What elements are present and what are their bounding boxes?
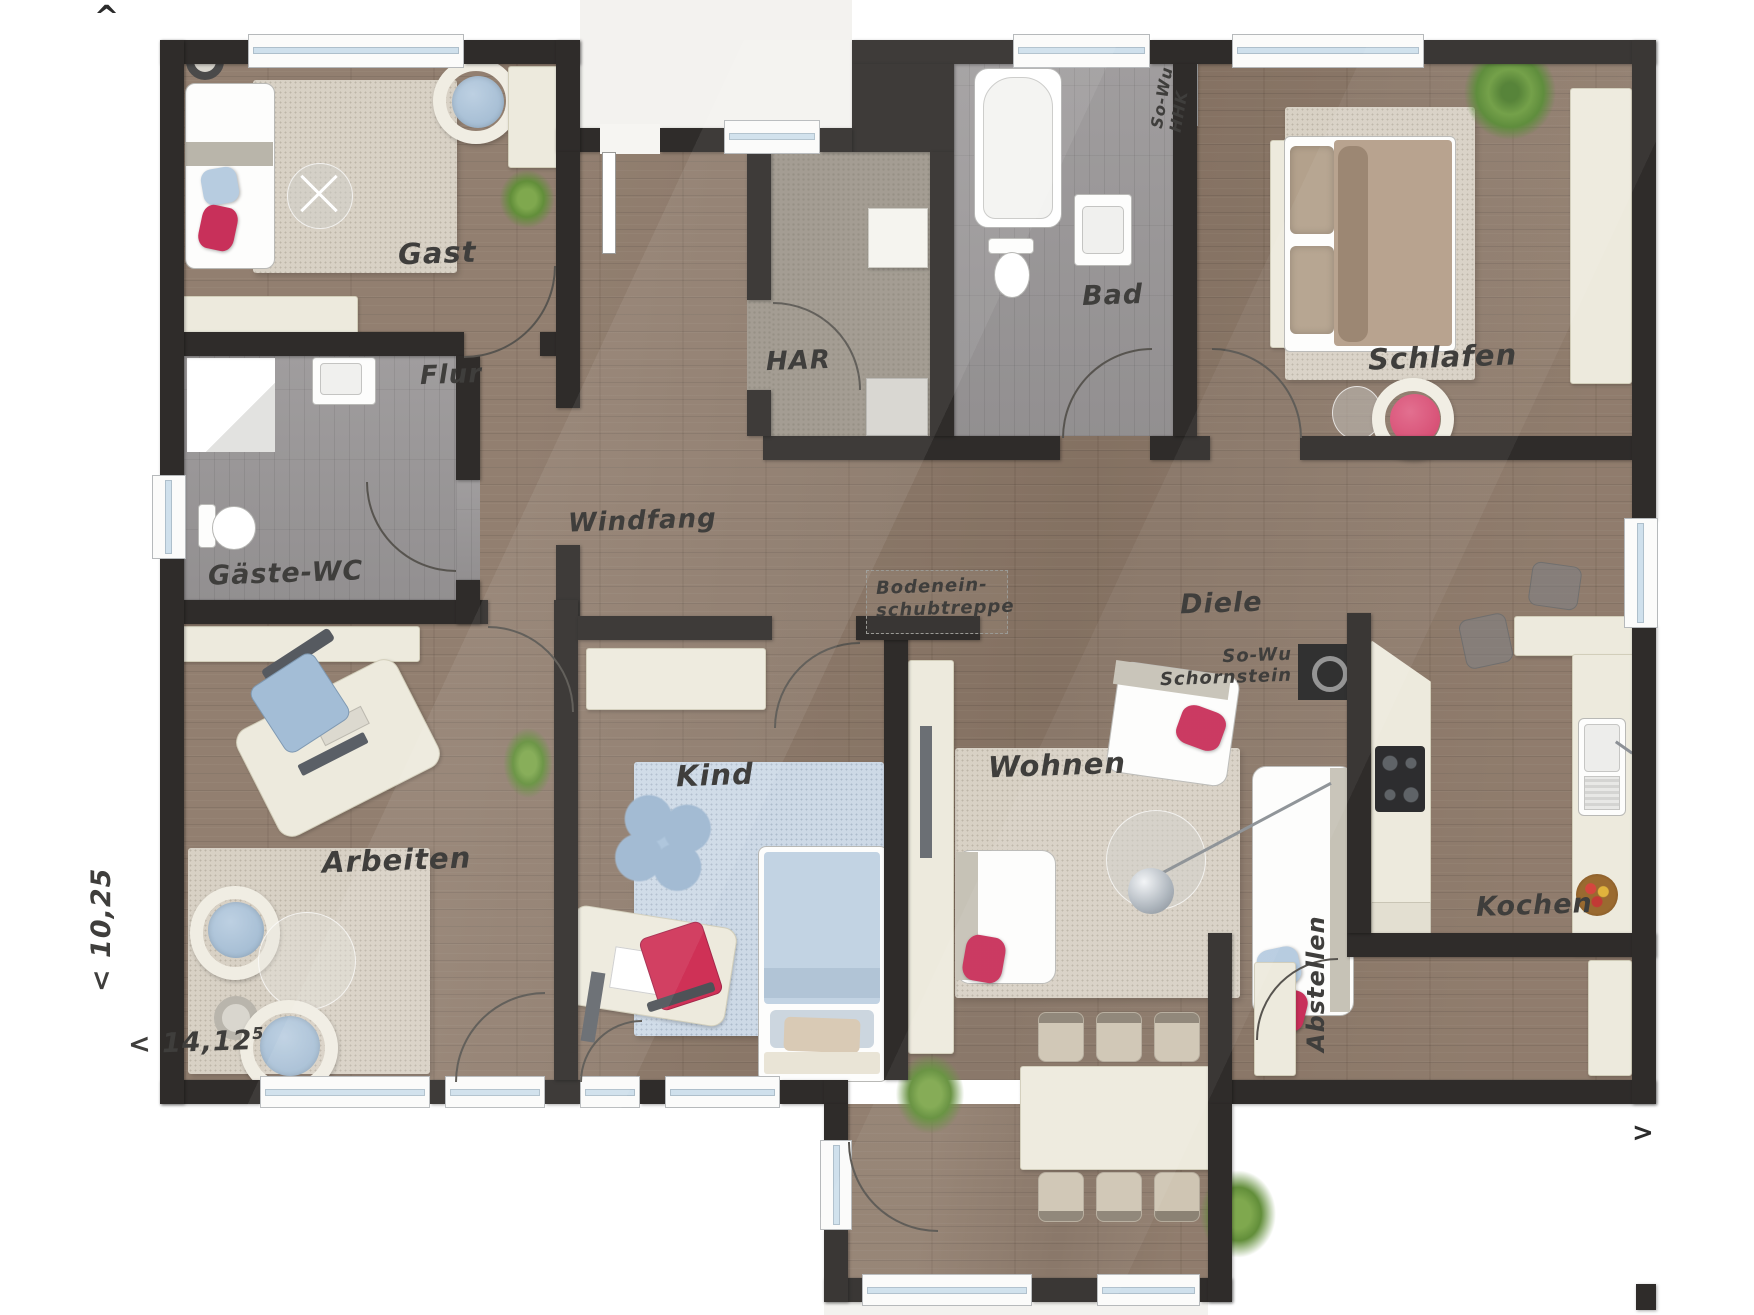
chimney-flue-icon [1312,656,1348,692]
wall [824,1230,848,1302]
wall [747,152,771,300]
wall [556,40,580,152]
bed-cushion [1290,246,1334,334]
floor-plan: Gast Flur Gäste-WC Arbeiten Windfang Kin… [0,0,1754,1315]
entry-door-opening [600,124,660,154]
wall [1232,1080,1656,1104]
arc-lamp-base [1128,868,1174,914]
window [248,34,464,68]
sink-drainer [1584,776,1620,810]
kitchen-base-cabinet [1371,902,1431,936]
wall [1150,40,1232,64]
plant-icon [502,726,554,800]
wash-basin-bowl [320,363,362,395]
floor-guest-wc-door [456,480,480,580]
terrace-door [820,1140,852,1230]
wall [1347,613,1371,933]
wall [1632,625,1656,1104]
wall [545,1080,580,1104]
tv-icon [920,726,932,858]
plant-icon [498,168,556,230]
window [152,475,186,559]
wall [184,600,488,624]
dining-chair [1096,1172,1142,1222]
window [862,1274,1032,1306]
dining-chair [1154,1012,1200,1062]
wall [780,1080,824,1104]
bed-cushion [1290,146,1334,234]
cooktop [1375,746,1425,812]
wall [456,580,480,624]
room-label-windfang: Windfang [568,503,718,538]
room-label-diele: Diele [1179,587,1263,621]
window [665,1076,780,1108]
storage-shelf [1588,960,1632,1076]
bathtub-inner [983,77,1053,219]
east-arrow-icon: > [1632,1118,1654,1148]
window [260,1076,430,1108]
dining-chair [1038,1012,1084,1062]
wall [578,616,772,640]
wash-basin-bowl [1082,206,1124,254]
bar-stool [1457,612,1514,671]
sink-basin [1584,724,1620,772]
window [724,120,820,154]
room-label-schlafen: Schlafen [1367,337,1517,376]
annotation-chimney: So-Wu Schornstein [1160,646,1292,688]
room-label-flur: Flur [419,359,482,391]
window [1097,1274,1200,1306]
wall [556,152,580,408]
terrace-post [1636,1284,1656,1310]
wall [184,332,464,356]
annotation-chimney-line2: Schornstein [1160,665,1293,691]
room-label-kochen: Kochen [1475,888,1593,923]
wall [1347,933,1656,957]
dimension-width: < 14,125 [127,1024,265,1061]
lounge-chair-cushion [260,1016,320,1076]
wall [1032,1278,1097,1302]
dining-chair [1154,1172,1200,1222]
wall [820,128,852,152]
room-label-abstellen: Abstellen [1302,915,1330,1052]
kitchen-bar [1514,616,1634,656]
wall [160,40,184,1104]
wall [1208,1104,1232,1302]
armchair-cushion [452,76,504,128]
wall [640,1080,665,1104]
wall [930,152,954,436]
wall [884,616,908,1080]
window [1232,34,1424,68]
floor-lamp-shade [258,912,356,1010]
bed-throw [1338,146,1368,342]
shower [187,358,275,452]
north-arrow-icon: ^ [94,0,119,35]
wall [763,436,1060,460]
kids-bed-fold [764,968,880,998]
dimension-depth: < 10,25 [86,868,117,992]
wall [1424,40,1656,64]
wall [1632,40,1656,520]
wall [824,1104,848,1140]
toilet-bowl [212,506,256,550]
dining-table [1020,1066,1214,1170]
dining-chair [1096,1012,1142,1062]
toilet-bowl [994,252,1030,298]
kids-shelf [586,648,766,710]
kids-bed-pillow-inner [783,1017,860,1054]
wall [1208,933,1232,1104]
dimension-width-value: < 14,12 [128,1025,253,1060]
kids-bed-foot [764,1052,880,1074]
dimension-width-sup: 5 [252,1024,265,1043]
lounge-chair-cushion [208,902,264,958]
wall [824,1080,848,1104]
wall [747,390,771,436]
wall [660,128,724,152]
window [1013,34,1150,68]
wall [1150,436,1210,460]
wall [852,64,954,152]
room-label-har: HAR [765,345,831,377]
room-label-bad: Bad [1081,279,1143,312]
window [1624,518,1658,628]
pillow-icon [199,165,241,207]
annotation-attic-stairs-line1: Bodenein- [876,574,988,599]
sofa-blanket [185,142,273,166]
washing-machine [868,208,928,268]
room-label-gast: Gast [397,235,477,272]
wall [430,1080,445,1104]
wall [540,332,556,356]
room-label-arbeiten: Arbeiten [321,840,471,879]
room-label-gaeste-wc: Gäste-WC [208,555,364,591]
entry-porch [580,0,852,128]
entry-door-leaf [602,152,616,254]
room-label-kind: Kind [675,757,754,794]
wardrobe [1570,88,1632,384]
dining-chair [1038,1172,1084,1222]
appliance [866,378,928,436]
wall [852,40,1013,64]
bar-stool [1527,561,1583,612]
wall [1300,436,1632,460]
room-label-wohnen: Wohnen [987,746,1126,785]
